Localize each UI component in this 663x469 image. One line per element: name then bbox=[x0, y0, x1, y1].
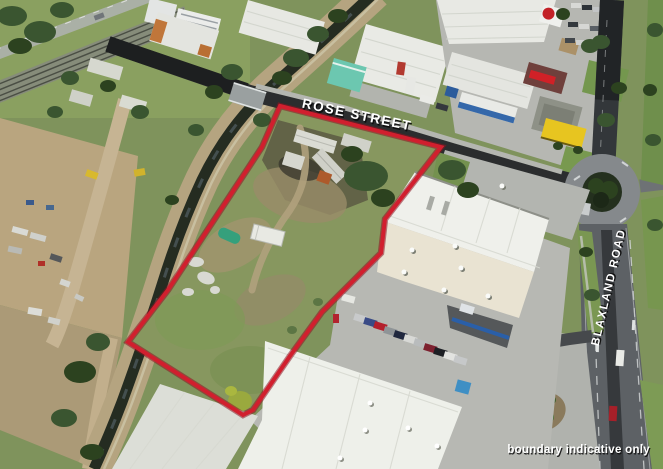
aerial-scene: ROSE STREET ROSE STREET BLAXLAND ROAD BL… bbox=[0, 0, 663, 469]
aerial-photo: ROSE STREET ROSE STREET BLAXLAND ROAD BL… bbox=[0, 0, 663, 469]
svg-text:boundary indicative only: boundary indicative only bbox=[507, 444, 650, 456]
lot-tree-clump bbox=[344, 161, 388, 191]
disclaimer-label: boundary indicative only boundary indica… bbox=[507, 444, 651, 458]
warehouse-northeast bbox=[437, 0, 556, 44]
